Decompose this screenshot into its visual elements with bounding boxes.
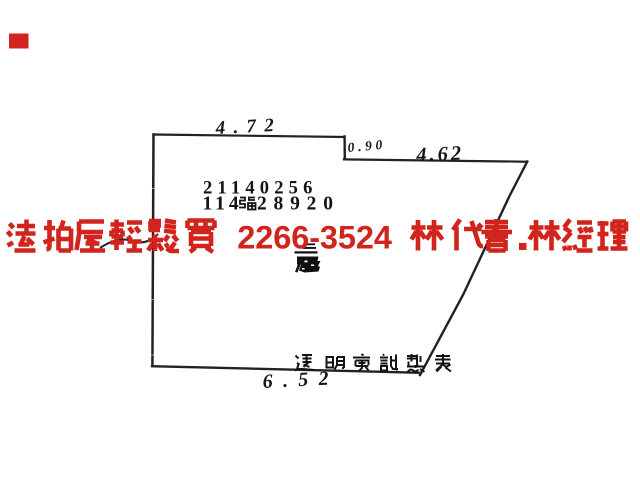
svg-text:4.72: 4.72 <box>214 115 282 140</box>
svg-text:2266-3524: 2266-3524 <box>237 220 392 256</box>
svg-text:114: 114 <box>203 194 243 215</box>
svg-text:28920: 28920 <box>257 194 340 215</box>
svg-text:6.52: 6.52 <box>262 367 339 393</box>
svg-text:4.62: 4.62 <box>415 142 465 166</box>
svg-text:0.90: 0.90 <box>347 137 387 155</box>
